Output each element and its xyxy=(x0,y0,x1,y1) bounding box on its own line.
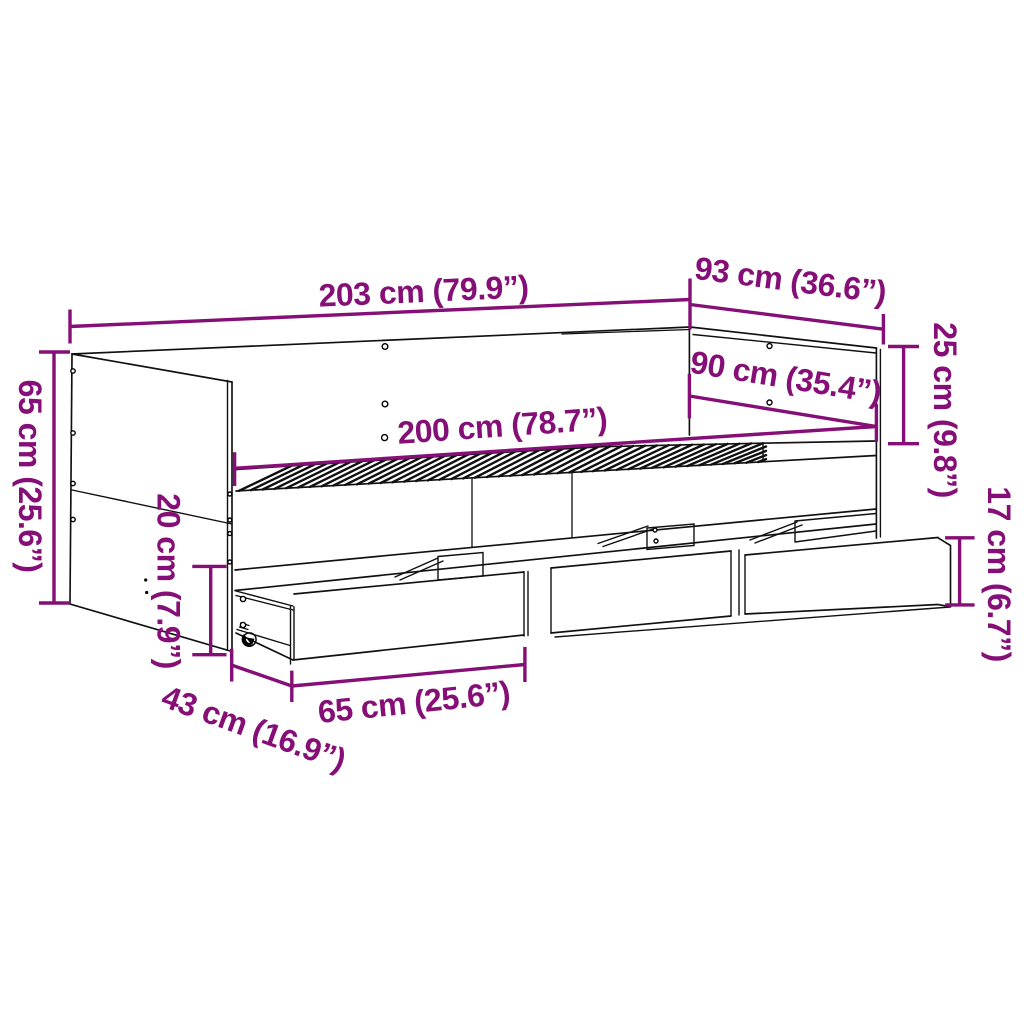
svg-text:25 cm (9.8”): 25 cm (9.8”) xyxy=(927,322,963,497)
svg-text:65 cm (25.6”): 65 cm (25.6”) xyxy=(12,380,48,573)
svg-text:20 cm (7.9”): 20 cm (7.9”) xyxy=(151,493,187,668)
svg-text:17 cm (6.7”): 17 cm (6.7”) xyxy=(981,486,1017,661)
